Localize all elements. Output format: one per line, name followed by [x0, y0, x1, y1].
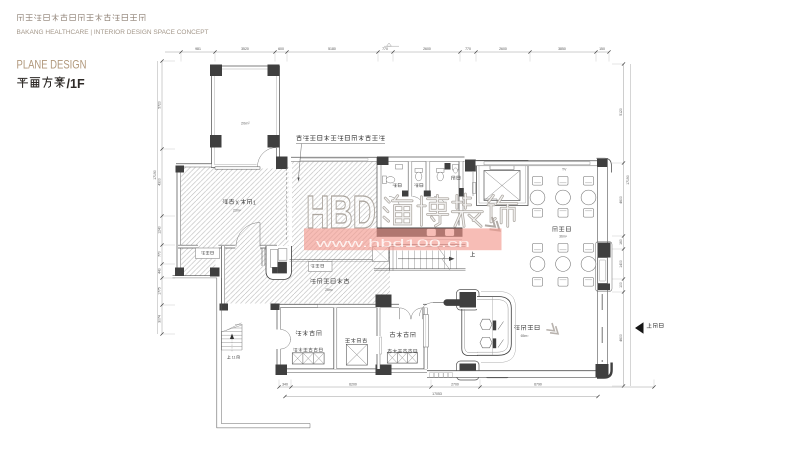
svg-text:4600: 4600 [619, 196, 623, 204]
svg-text:3850: 3850 [558, 47, 566, 51]
svg-text:5180: 5180 [328, 47, 336, 51]
svg-text:2600: 2600 [499, 47, 507, 51]
svg-text:150: 150 [599, 47, 605, 51]
svg-text:TV: TV [562, 168, 567, 172]
svg-text:1: 1 [253, 200, 256, 206]
svg-text:5720: 5720 [158, 101, 162, 109]
svg-text:4300: 4300 [158, 178, 162, 186]
svg-text:17190: 17190 [626, 175, 630, 185]
svg-text:1240: 1240 [158, 226, 162, 234]
svg-text:1775: 1775 [158, 287, 162, 295]
svg-text:17190: 17190 [153, 170, 157, 180]
svg-text:6790: 6790 [534, 382, 542, 386]
svg-text:160: 160 [619, 239, 623, 245]
svg-text:6200: 6200 [349, 382, 357, 386]
svg-text:1400: 1400 [619, 260, 623, 268]
svg-text:5120: 5120 [619, 108, 623, 116]
svg-text:770: 770 [158, 251, 162, 257]
svg-text:770: 770 [382, 47, 388, 51]
svg-text:981: 981 [195, 47, 201, 51]
svg-text:65m²: 65m² [521, 334, 530, 338]
svg-text:BAKANG HEALTHCARE | INTERIOR D: BAKANG HEALTHCARE | INTERIOR DESIGN SPAC… [17, 29, 209, 36]
svg-text:www.hbd100.cn: www.hbd100.cn [314, 238, 470, 250]
svg-text:3520: 3520 [241, 47, 249, 51]
svg-text:/1F: /1F [67, 77, 86, 91]
svg-text:PLANE DESIGN: PLANE DESIGN [17, 58, 87, 72]
svg-text:770: 770 [465, 47, 471, 51]
svg-text:11: 11 [232, 356, 236, 360]
svg-text:20m²: 20m² [241, 122, 250, 126]
svg-text:23m²: 23m² [233, 209, 242, 213]
svg-text:440: 440 [158, 268, 162, 274]
svg-text:100: 100 [619, 282, 623, 288]
svg-text:340: 340 [282, 382, 288, 386]
svg-text:25m²: 25m² [325, 288, 334, 292]
svg-text:3074: 3074 [158, 315, 162, 323]
svg-text:17053: 17053 [432, 392, 442, 396]
svg-text:600: 600 [278, 47, 284, 51]
svg-text:36m²: 36m² [559, 235, 568, 239]
svg-text:2600: 2600 [423, 47, 431, 51]
svg-text:2700: 2700 [451, 382, 459, 386]
svg-text:4600: 4600 [619, 334, 623, 342]
